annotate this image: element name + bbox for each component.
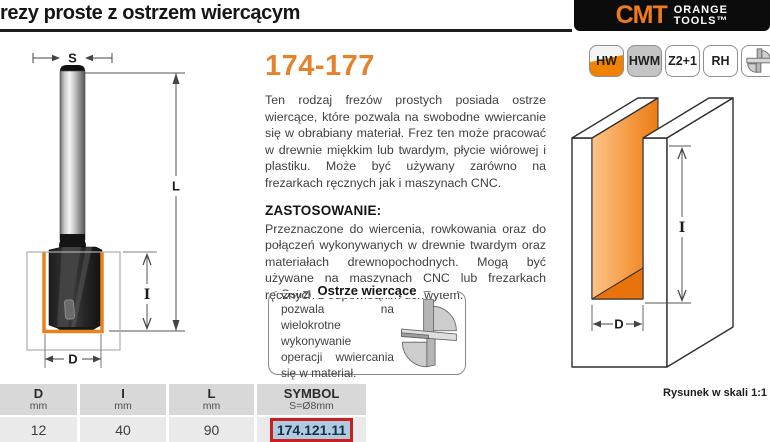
drilling-edge-callout: Ostrze wiercące Ostrze wiercące pozwala … bbox=[268, 291, 466, 375]
table-cell-l: 90 bbox=[169, 417, 254, 442]
dim-label-i-3d: I bbox=[679, 220, 685, 236]
board-side-face bbox=[667, 98, 733, 367]
dim-i: I bbox=[143, 254, 151, 329]
logo-brand-text: CMT bbox=[616, 3, 667, 28]
application-heading: ZASTOSOWANIE: bbox=[265, 203, 546, 218]
table-header-i: I mm bbox=[80, 384, 166, 415]
dim-label-d: D bbox=[68, 352, 77, 367]
badge-hwm: HWM bbox=[627, 45, 662, 77]
symbol-value-highlighted[interactable]: 174.121.11 bbox=[270, 418, 353, 442]
table-cell-symbol: 174.121.11 bbox=[257, 417, 366, 442]
callout-title: Ostrze wiercące bbox=[310, 283, 423, 298]
badge-rh: RH bbox=[703, 45, 738, 77]
drill-edge-icon bbox=[398, 298, 459, 370]
table-col-i: I mm 40 bbox=[80, 384, 166, 442]
table-col-symbol: SYMBOL S=Ø8mm 174.121.11 bbox=[257, 384, 366, 442]
table-col-l: L mm 90 bbox=[169, 384, 254, 442]
dim-label-s: S bbox=[68, 51, 77, 66]
badge-cutter bbox=[741, 45, 770, 77]
dim-label-l: L bbox=[172, 179, 180, 194]
table-header-symbol: SYMBOL S=Ø8mm bbox=[257, 384, 366, 415]
badge-z2plus1: Z2+1 bbox=[665, 45, 700, 77]
logo-subtitle: ORANGE TOOLS™ bbox=[674, 5, 729, 27]
callout-text: Ostrze wiercące pozwala na wielokrotne w… bbox=[281, 287, 394, 382]
description-column: 174-177 Ten rodzaj frezów prostych posia… bbox=[265, 50, 546, 315]
dim-l: L bbox=[172, 73, 180, 331]
trademark-symbol: ™ bbox=[716, 15, 728, 27]
dim-label-i: I bbox=[144, 287, 150, 303]
badge-row: HW HWM Z2+1 RH bbox=[589, 45, 770, 77]
table-col-d: D mm 12 bbox=[0, 384, 77, 442]
title-rule bbox=[0, 29, 572, 32]
table-header-l: L mm bbox=[169, 384, 254, 415]
product-code: 174-177 bbox=[265, 50, 546, 83]
dim-label-d-3d: D bbox=[614, 317, 623, 332]
table-cell-i: 40 bbox=[80, 417, 166, 442]
page-title: rezy proste z ostrzem wiercącym bbox=[0, 2, 300, 25]
product-description: Ten rodzaj frezów prostych posiada ostrz… bbox=[265, 92, 546, 192]
badge-hw: HW bbox=[589, 45, 624, 77]
scale-note: Rysunek w skali 1:1 bbox=[663, 387, 767, 399]
table-header-d: D mm bbox=[0, 384, 77, 415]
catalog-page: rezy proste z ostrzem wiercącym CMT ORAN… bbox=[0, 0, 770, 442]
spec-table: D mm 12 I mm 40 L mm 90 SYMBOL S=Ø8mm bbox=[0, 384, 366, 442]
cutter-profile-icon bbox=[745, 47, 770, 75]
groove-3d-diagram: I D bbox=[558, 85, 770, 410]
bit-shank bbox=[60, 71, 85, 240]
cmt-logo: CMT ORANGE TOOLS™ bbox=[574, 0, 770, 31]
table-cell-d: 12 bbox=[0, 417, 77, 442]
router-bit-drawing: S L bbox=[5, 38, 205, 383]
bit-cutting-head bbox=[49, 247, 102, 332]
dim-d: D bbox=[45, 334, 101, 368]
